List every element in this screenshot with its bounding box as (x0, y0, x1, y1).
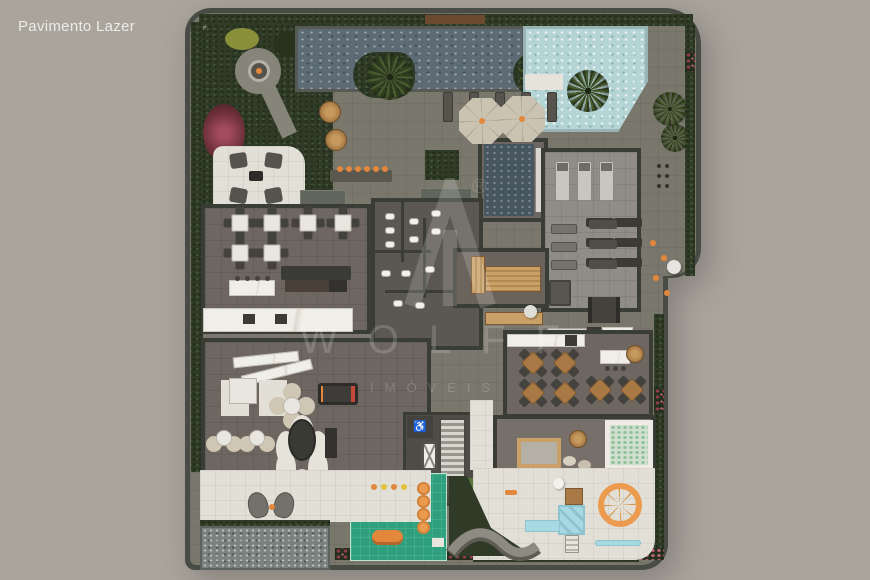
play-pouf (417, 482, 430, 495)
bathroom-fixture (431, 210, 441, 217)
anchor-point (657, 164, 661, 168)
planting-brown (425, 15, 485, 24)
weight-bench (551, 242, 577, 252)
training-cone (664, 290, 670, 296)
party-table (300, 215, 317, 232)
bathroom-fixture (385, 241, 395, 248)
bathroom-fixture (385, 213, 395, 220)
beanbag (563, 456, 576, 466)
flowers-right (685, 52, 695, 72)
hedge-right-lower (654, 314, 664, 550)
bathroom-fixture (409, 236, 419, 243)
bar-stool (373, 166, 379, 172)
strength-machine (589, 240, 617, 249)
sink (243, 314, 255, 324)
play-dot (371, 484, 377, 490)
sandbox (517, 438, 561, 468)
sun-lounger (547, 92, 557, 122)
palm-tree (661, 124, 689, 152)
sun-lounger (443, 92, 453, 122)
flowers-right-lower (654, 388, 664, 412)
partition-wall (423, 218, 426, 298)
round-table (283, 397, 301, 415)
dumbbell-rack (549, 280, 571, 306)
bar-stool (346, 166, 352, 172)
play-pouf (417, 508, 430, 521)
treadmill (577, 161, 592, 201)
party-table (335, 215, 352, 232)
play-pad (432, 538, 444, 547)
treadmill (599, 161, 614, 201)
party-island (229, 280, 275, 296)
toy (505, 490, 517, 495)
play-tower (565, 488, 583, 505)
tv-console (325, 428, 337, 458)
anchor-point (657, 174, 661, 178)
accessible-wc-icon: ♿ (407, 416, 433, 438)
page-title: Pavimento Lazer (18, 18, 135, 35)
island-stools (235, 276, 240, 281)
in-pool-loungers (525, 74, 563, 90)
armchair (229, 152, 248, 169)
bar-stool (364, 166, 370, 172)
sauna-bench (471, 256, 485, 294)
party-table (232, 215, 249, 232)
party-table (232, 245, 249, 262)
floorplan-render: Pavimento Lazer (0, 0, 870, 580)
bathroom-fixture (393, 300, 403, 307)
anchor-point (665, 174, 669, 178)
parasol (499, 96, 545, 142)
bathroom-fixture (401, 270, 411, 277)
round-table (626, 345, 644, 363)
play-pouf (417, 521, 430, 534)
stairs (439, 418, 466, 478)
play-platform (558, 505, 585, 535)
fire-bowl (269, 504, 275, 510)
armchair (229, 187, 248, 205)
bar-stool (337, 166, 343, 172)
training-cone (661, 255, 667, 261)
bathroom-fixture (415, 302, 425, 309)
training-cone (650, 240, 656, 246)
palm-tree (653, 92, 687, 126)
exercise-ball (667, 260, 681, 274)
card-table (288, 419, 316, 461)
awning (300, 190, 346, 205)
party-table (264, 215, 281, 232)
bathroom-fixture (409, 218, 419, 225)
coffee-table (249, 171, 263, 181)
play-pouf (417, 495, 430, 508)
water-mirror (200, 526, 330, 570)
bathroom-fixture (385, 227, 395, 234)
play-dot (391, 484, 397, 490)
bar-stool (382, 166, 388, 172)
kids-table (569, 430, 587, 448)
anchor-point (657, 184, 661, 188)
anchor-point (665, 164, 669, 168)
deck-table (325, 129, 347, 151)
party-table (264, 245, 281, 262)
walkway (470, 400, 493, 470)
play-dot (381, 484, 387, 490)
armchair (264, 187, 283, 205)
bathroom-fixture (431, 228, 441, 235)
elevator (447, 478, 466, 493)
green-wall (425, 150, 459, 180)
decor-sphere (524, 305, 537, 318)
play-ladder (565, 535, 579, 553)
bistro-table (216, 430, 232, 446)
island-stools (605, 366, 610, 371)
climbing-wheel (598, 483, 642, 527)
play-dot (401, 484, 407, 490)
seesaw (595, 540, 641, 546)
ball-pit (605, 420, 653, 470)
strength-machine (589, 220, 617, 229)
treadmill (555, 161, 570, 201)
deck-table (319, 101, 341, 123)
leisure-floor-plan: ♿ (185, 8, 701, 570)
bathroom-fixture (425, 266, 435, 273)
kids-bench (372, 530, 403, 545)
bar-stool (355, 166, 361, 172)
play-ball (553, 478, 564, 489)
appliance (565, 335, 577, 346)
weight-bench (551, 260, 577, 270)
slide (525, 520, 560, 532)
training-cone (653, 275, 659, 281)
terrace (200, 470, 431, 522)
palm-tree (567, 70, 609, 112)
weight-bench (551, 224, 577, 234)
bistro-table (249, 430, 265, 446)
palm-tree (367, 54, 413, 100)
armchair (264, 152, 283, 169)
bathroom-fixture (381, 270, 391, 277)
sofa-bench (281, 266, 351, 280)
sofa-base (285, 280, 347, 292)
fire-pit-flame (256, 68, 262, 74)
cable-machine (588, 297, 620, 323)
parasol (459, 98, 505, 144)
strength-machine (589, 260, 617, 269)
cooktop (275, 314, 287, 324)
pool-table (318, 383, 358, 405)
anchor-point (665, 184, 669, 188)
dining-table (229, 378, 257, 404)
sauna-bench (485, 266, 541, 292)
yellow-bush (225, 28, 259, 50)
elevator (422, 442, 437, 470)
spa-pool (484, 144, 534, 216)
